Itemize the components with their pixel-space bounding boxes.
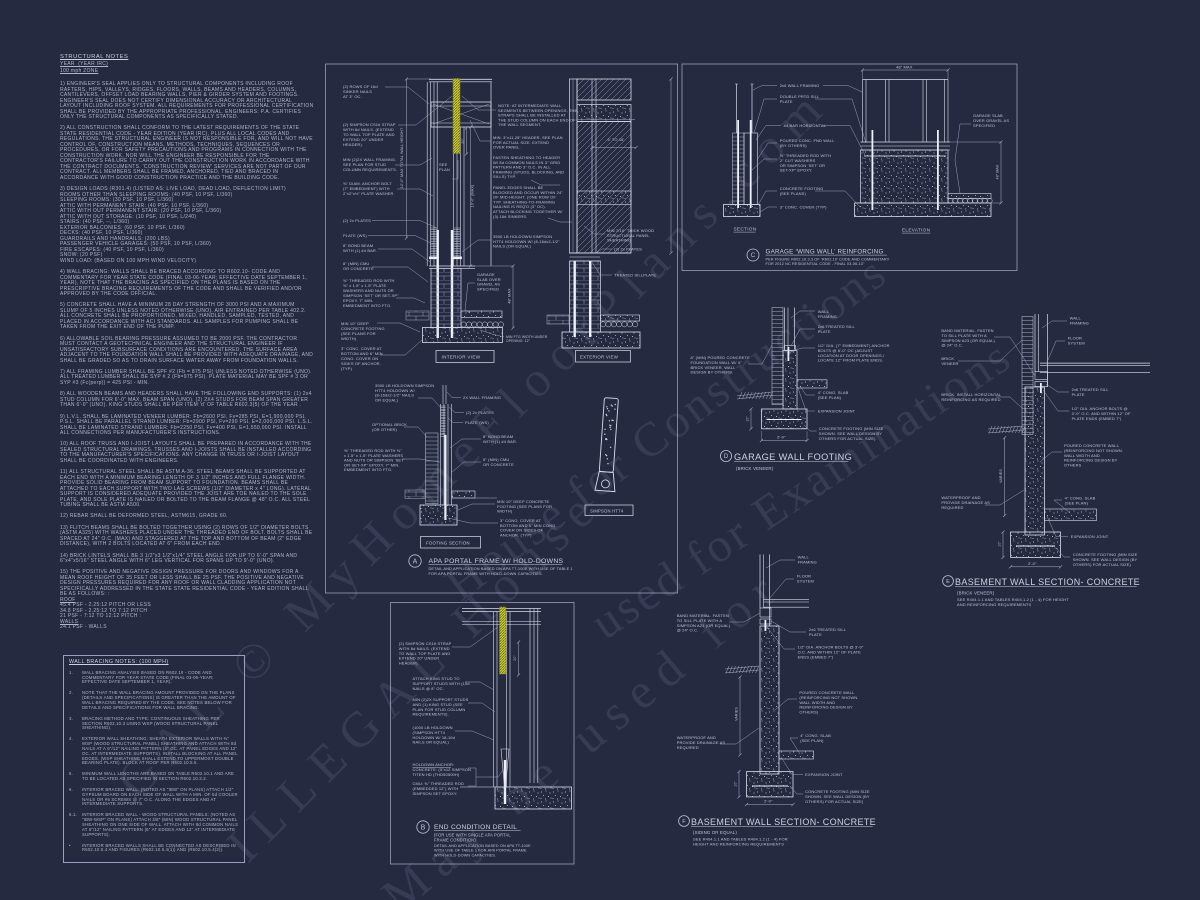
svg-text:DETAIL AND APPLICATION BASED O: DETAIL AND APPLICATION BASED ON APA TT-1… — [434, 844, 531, 848]
svg-text:SET-XP" EPOXY.: SET-XP" EPOXY. — [780, 168, 813, 173]
svg-text:(BY OTHERS): (BY OTHERS) — [780, 143, 808, 148]
svg-text:HEIGHT AND REINFORCING REQUIRE: HEIGHT AND REINFORCING REQUIREMENTS — [693, 841, 784, 846]
svg-text:20": 20" — [513, 655, 517, 661]
svg-text:2'-0": 2'-0" — [777, 435, 786, 440]
svg-text:OTHERS: OTHERS — [1064, 463, 1082, 468]
svg-text:2x6 WALL FRAMING: 2x6 WALL FRAMING — [780, 83, 820, 88]
svg-text:@ 24" O.C.: @ 24" O.C. — [941, 343, 963, 348]
svg-text:10": 10" — [734, 781, 738, 787]
svg-text:10": 10" — [998, 541, 1002, 547]
svg-text:C: C — [751, 252, 756, 259]
svg-text:OR CONCRETE: OR CONCRETE — [483, 462, 514, 467]
svg-text:D: D — [724, 454, 729, 460]
svg-text:48" MAX: 48" MAX — [508, 288, 512, 304]
svg-text:AND REINFORCING REQUIREMENTS: AND REINFORCING REQUIREMENTS — [957, 602, 1031, 607]
svg-text:EXTERIOR VIEW: EXTERIOR VIEW — [580, 354, 619, 359]
svg-text:48" MAX: 48" MAX — [996, 164, 1000, 180]
svg-text:OTHERS) FOR ACTUAL SIZE): OTHERS) FOR ACTUAL SIZE) — [805, 799, 864, 804]
svg-text:OPENING: 12": OPENING: 12" — [506, 339, 531, 343]
svg-text:FRAMING: FRAMING — [818, 314, 837, 319]
svg-text:LOCATE 12" FROM PLATE ENDS.: LOCATE 12" FROM PLATE ENDS. — [818, 358, 884, 363]
svg-text:EXPANSION JOINT: EXPANSION JOINT — [1071, 534, 1109, 539]
svg-text:HEADER).: HEADER). — [399, 661, 419, 666]
svg-text:WIDTH): WIDTH) — [341, 336, 357, 341]
svg-text:APA PORTAL FRAME W/ HOLD-DOWNS: APA PORTAL FRAME W/ HOLD-DOWNS — [429, 558, 564, 565]
svg-text:REQUIREMENTS).: REQUIREMENTS). — [413, 712, 449, 717]
svg-text:FRAMING: FRAMING — [1070, 320, 1089, 325]
svg-text:NAILS @ 8" OC.: NAILS @ 8" OC. — [413, 686, 444, 691]
svg-text:PLATE: PLATE — [818, 329, 831, 334]
svg-text:SPECIFIED: SPECIFIED — [477, 286, 499, 291]
svg-text:BASEMENT WALL SECTION- CONCRET: BASEMENT WALL SECTION- CONCRETE — [955, 577, 1140, 587]
svg-text:@ 24" O.C.: @ 24" O.C. — [677, 628, 699, 633]
svg-text:GARAGE ‘WING WALL’ REINFORCING: GARAGE ‘WING WALL’ REINFORCING — [766, 249, 884, 256]
svg-text:2'-0": 2'-0" — [1028, 561, 1037, 566]
svg-text:(2) 2x PLATES: (2) 2x PLATES — [614, 247, 642, 252]
svg-text:FOR 2012 NC RESIDENTIAL CODE: FOR 2012 NC RESIDENTIAL CODE - FINAL 03-… — [766, 262, 866, 266]
svg-text:(SEE PLAN): (SEE PLAN) — [1065, 500, 1089, 505]
svg-text:(SEE PLAN): (SEE PLAN) — [800, 738, 824, 743]
svg-text:PLATE (WS): PLATE (WS) — [465, 420, 489, 425]
svg-text:3" CONC. COVER (TYP): 3" CONC. COVER (TYP) — [780, 205, 827, 210]
svg-text:(2) 2x PLATES: (2) 2x PLATES — [343, 218, 371, 223]
svg-text:SIMPSON HTT4: SIMPSON HTT4 — [590, 508, 624, 513]
svg-text:10'-0" (MAX): 10'-0" (MAX) — [471, 185, 475, 208]
svg-text:(OR OTHER): (OR OTHER) — [372, 427, 398, 432]
svg-text:NAILS (OR EQUAL): NAILS (OR EQUAL) — [493, 244, 531, 249]
svg-text:WITH USE OF TABLE 1 FOR APA PO: WITH USE OF TABLE 1 FOR APA PORTAL FRAME — [434, 849, 527, 853]
svg-text:PLATE ENDS (EMBED 7"): PLATE ENDS (EMBED 7") — [1072, 416, 1122, 421]
svg-text:SIMPSON SET EPOXY.: SIMPSON SET EPOXY. — [413, 791, 458, 796]
svg-text:20": 20" — [461, 138, 465, 144]
svg-text:REINFORCING AS REQUIRED: REINFORCING AS REQUIRED — [941, 397, 1000, 402]
svg-text:10": 10" — [746, 416, 750, 422]
svg-text:2X WALL FRAMING: 2X WALL FRAMING — [463, 395, 501, 400]
svg-text:INTERIOR VIEW: INTERIOR VIEW — [442, 355, 481, 360]
svg-text:FOOTING SECTION: FOOTING SECTION — [426, 540, 470, 545]
svg-text:#4 BAR HORIZONTAL: #4 BAR HORIZONTAL — [784, 123, 827, 128]
svg-text:(BRICK VENEER): (BRICK VENEER) — [957, 591, 995, 596]
svg-text:(2) 2x PLATES: (2) 2x PLATES — [466, 410, 494, 415]
svg-text:REQUIRED: REQUIRED — [941, 505, 963, 510]
svg-text:TREATED SILLPLATE: TREATED SILLPLATE — [614, 273, 656, 278]
svg-text:TITEN HD (THD50500H): TITEN HD (THD50500H) — [413, 772, 460, 777]
svg-text:(BRICK VENEER): (BRICK VENEER) — [736, 466, 774, 471]
svg-text:OR EQUAL): OR EQUAL) — [375, 397, 399, 402]
svg-text:AT 3" OC.: AT 3" OC. — [343, 94, 362, 99]
svg-text:VARIES: VARIES — [735, 707, 739, 721]
svg-text:SYSTEM: SYSTEM — [1068, 340, 1085, 345]
svg-text:FRAMING: FRAMING — [798, 559, 817, 564]
svg-text:(3) 16d SINKERS.: (3) 16d SINKERS. — [493, 214, 527, 219]
svg-text:ANCHOR. (TYP): ANCHOR. (TYP) — [500, 532, 532, 537]
svg-text:48" MAX: 48" MAX — [896, 65, 913, 70]
svg-text:SYSTEM: SYSTEM — [797, 578, 814, 583]
svg-text:B: B — [421, 825, 426, 832]
svg-text:2'-0": 2'-0" — [764, 799, 773, 804]
svg-text:FRAME CONDITION): FRAME CONDITION) — [434, 838, 476, 843]
svg-text:OTHERS): OTHERS) — [799, 710, 818, 715]
svg-text:6' TO 18': 6' TO 18' — [608, 137, 625, 142]
svg-text:NAILS OR EQUAL): NAILS OR EQUAL) — [413, 740, 450, 745]
svg-text:BASEMENT WALL SECTION- CONCRET: BASEMENT WALL SECTION- CONCRETE — [691, 817, 876, 827]
svg-text:E: E — [946, 579, 950, 585]
svg-text:OVER PANEL.: OVER PANEL. — [493, 145, 521, 150]
svg-text:DESIGN BY OTHERS.: DESIGN BY OTHERS. — [691, 370, 734, 375]
svg-text:THE WALL SEGMENT.: THE WALL SEGMENT. — [498, 122, 541, 127]
svg-text:PLATE: PLATE — [809, 632, 822, 637]
svg-text:EMBEDMENT INTO FTG.: EMBEDMENT INTO FTG. — [344, 467, 393, 472]
svg-text:(TYP): (TYP) — [341, 366, 353, 371]
svg-text:PLATE (WS): PLATE (WS) — [343, 233, 367, 238]
svg-text:PER FIGURE R602.10.3.3 OF ‘R60: PER FIGURE R602.10.3.3 OF ‘R602.10’ CODE… — [766, 258, 890, 262]
svg-text:END CONDITION DETAIL: END CONDITION DETAIL — [434, 824, 517, 831]
svg-text:VARIES: VARIES — [999, 469, 1003, 483]
svg-text:SILLS) TYP.: SILLS) TYP. — [493, 174, 516, 179]
svg-text:ENDS (EMBED 7"): ENDS (EMBED 7") — [798, 654, 834, 659]
svg-text:COLUMN REQUIREMENTS.: COLUMN REQUIREMENTS. — [343, 167, 397, 172]
svg-text:WIDTH): WIDTH) — [497, 509, 513, 514]
svg-text:(SEE PLANS): (SEE PLANS) — [780, 191, 807, 196]
svg-text:SHEATHING: SHEATHING — [607, 238, 631, 243]
svg-text:OTHERS FOR ACTUAL SIZE): OTHERS FOR ACTUAL SIZE) — [819, 436, 876, 441]
svg-text:(SIDING OR EQUAL): (SIDING OR EQUAL) — [693, 830, 737, 835]
svg-text:FOR APA PORTAL FRAME WITH HOLD: FOR APA PORTAL FRAME WITH HOLD-DOWN CAPA… — [429, 571, 543, 576]
svg-text:SECTION: SECTION — [734, 227, 757, 232]
svg-text:ELEVATION: ELEVATION — [902, 228, 930, 233]
svg-text:PLATE: PLATE — [1072, 392, 1085, 397]
svg-text:REQUIRED: REQUIRED — [677, 745, 699, 750]
svg-text:OR CONCRETE: OR CONCRETE — [343, 266, 374, 271]
svg-text:F: F — [682, 819, 686, 825]
svg-text:VENEER: VENEER — [941, 361, 958, 366]
svg-text:WITH (1) #4 BAR.: WITH (1) #4 BAR. — [343, 248, 377, 253]
svg-text:SPECIFIED: SPECIFIED — [973, 123, 995, 128]
svg-text:OTHERS) FOR ACTUAL SIZE): OTHERS) FOR ACTUAL SIZE) — [1073, 562, 1132, 567]
svg-text:HEADER).: HEADER). — [343, 142, 363, 147]
svg-text:12'-0" MAX TOTAL WALL HEIGHT: 12'-0" MAX TOTAL WALL HEIGHT — [400, 127, 404, 188]
svg-text:PLAN: PLAN — [439, 167, 450, 172]
svg-text:WITH (1) #4 BAR.: WITH (1) #4 BAR. — [483, 439, 517, 444]
svg-text:2"x2"x⅛" PLATE WASHER.: 2"x2"x⅛" PLATE WASHER. — [343, 191, 395, 196]
svg-text:PLATE: PLATE — [780, 99, 793, 104]
svg-text:(SEE PLAN): (SEE PLAN) — [818, 395, 842, 400]
svg-text:EXPANSION JOINT: EXPANSION JOINT — [805, 772, 843, 777]
svg-text:GARAGE WALL FOOTING: GARAGE WALL FOOTING — [734, 452, 852, 462]
svg-text:EXPANSION JOINT: EXPANSION JOINT — [818, 409, 856, 414]
svg-text:WITH HOLD-DOWN CAPACITIES.: WITH HOLD-DOWN CAPACITIES. — [434, 853, 496, 857]
svg-text:A: A — [413, 559, 418, 566]
svg-text:EMBEDMENT INTO FTG.: EMBEDMENT INTO FTG. — [343, 303, 392, 308]
